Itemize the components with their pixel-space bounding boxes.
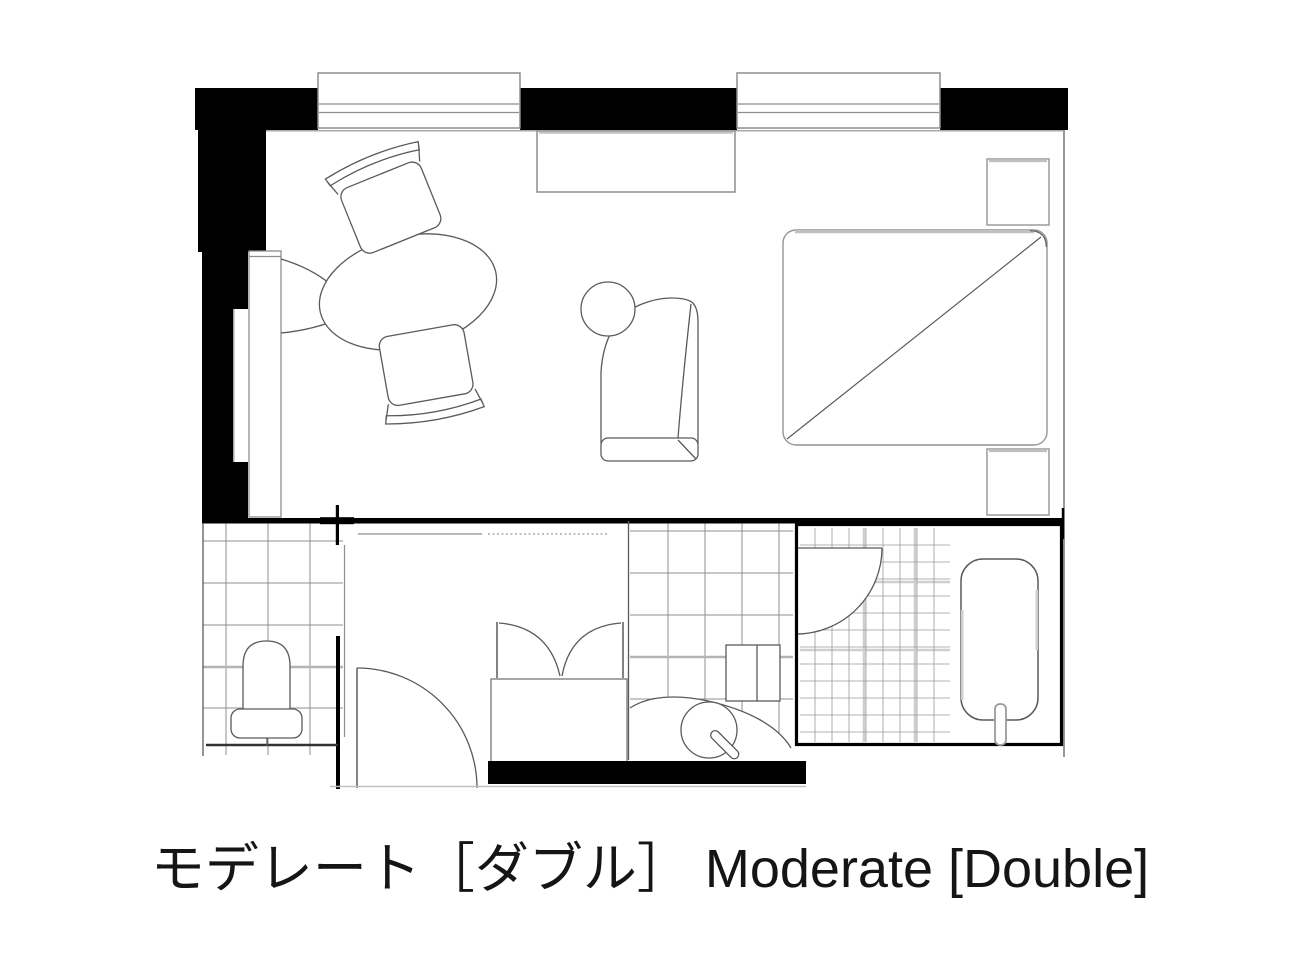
plan-title-japanese: モデレート［ダブル］ bbox=[151, 839, 691, 899]
bathtub bbox=[961, 559, 1038, 745]
bathroom-door bbox=[796, 548, 882, 634]
vanity-shelf bbox=[726, 645, 780, 701]
window-1 bbox=[318, 73, 520, 128]
left-wall-niche bbox=[233, 309, 249, 462]
plan-title: モデレート［ダブル］Moderate [Double] bbox=[0, 824, 1300, 903]
double-bed bbox=[783, 230, 1047, 445]
plan-title-english: Moderate [Double] bbox=[705, 839, 1149, 899]
tv-board bbox=[537, 131, 735, 192]
window-2 bbox=[737, 73, 940, 128]
floor-plan-page: モデレート［ダブル］Moderate [Double] bbox=[0, 0, 1300, 975]
closet bbox=[491, 622, 627, 783]
entrance-threshold bbox=[330, 761, 806, 787]
toilet bbox=[231, 641, 302, 746]
nightstand-bottom bbox=[987, 449, 1049, 515]
counter-panel bbox=[249, 251, 281, 517]
nightstand-top bbox=[987, 159, 1049, 225]
entrance-door bbox=[357, 668, 477, 788]
side-table bbox=[581, 282, 635, 336]
chair-2 bbox=[371, 322, 485, 428]
